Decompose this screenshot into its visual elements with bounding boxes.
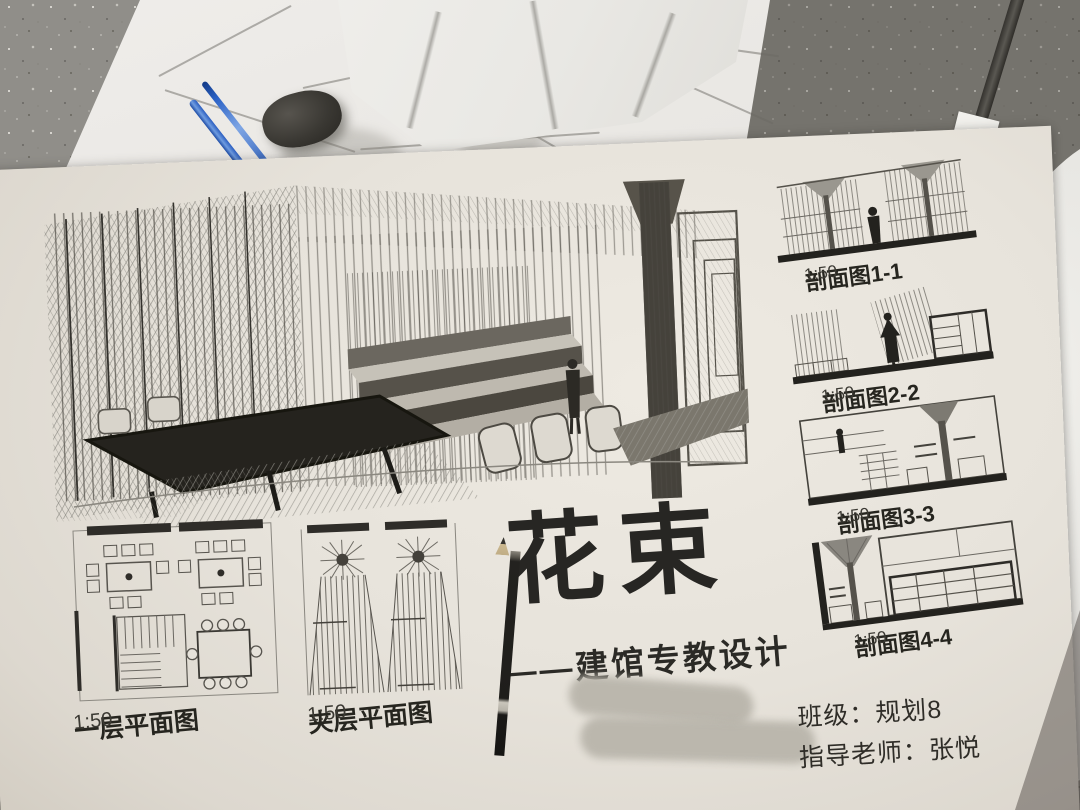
section-scale: 1:50 [853, 627, 888, 651]
first-floor-plan-block: 一层平面图 1:50 [58, 510, 294, 712]
section-scale: 1:50 [835, 504, 870, 528]
advisor-info: 指导老师：张悦 [798, 728, 982, 775]
section-scale: 1:50 [803, 262, 838, 286]
mezzanine-plan [289, 513, 474, 700]
class-info: 班级：规划8 [796, 690, 943, 735]
class-value: 规划8 [875, 696, 943, 728]
poster-title: 花束 [503, 489, 734, 622]
presentation-board: 一层平面图 1:50 [0, 126, 1080, 810]
advisor-label: 指导老师： [798, 737, 929, 773]
plan-scale: 1:50 [73, 709, 114, 736]
section-drawing-1-1 [763, 146, 983, 264]
class-label: 班级： [797, 700, 877, 733]
perspective-drawing [43, 161, 754, 522]
plan-scale: 1:50 [306, 701, 347, 728]
section-scale: 1:50 [820, 383, 855, 407]
photo-scene: 一层平面图 1:50 [0, 0, 1080, 810]
mezzanine-plan-block: 夹层平面图 1:50 [289, 513, 475, 705]
censored-smudge [580, 716, 816, 765]
section-1-1-block: 剖面图1-1 1:50 [763, 146, 984, 269]
advisor-value: 张悦 [928, 734, 982, 765]
first-floor-plan [58, 510, 294, 707]
